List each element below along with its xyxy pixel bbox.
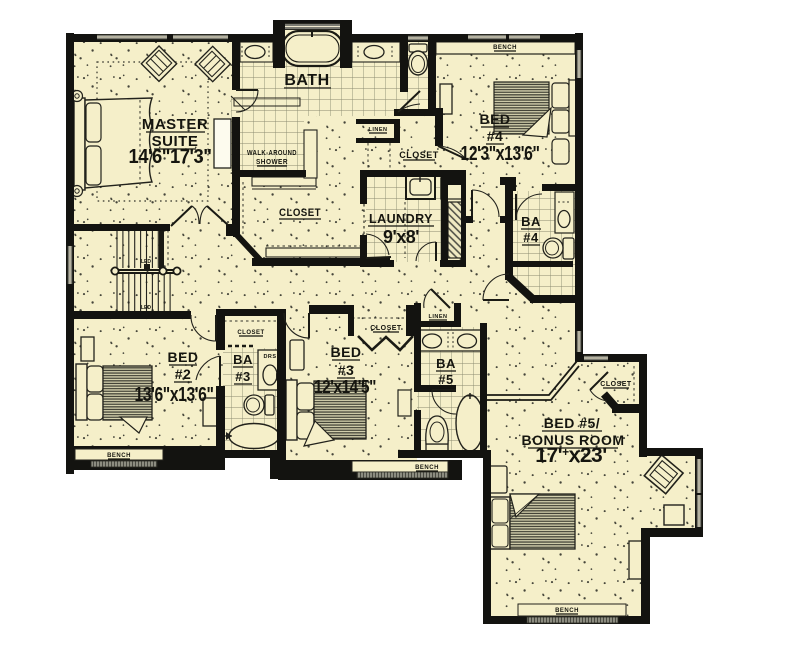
svg-text:#2: #2 [175, 366, 192, 382]
svg-text:BATH: BATH [284, 72, 329, 89]
svg-text:#3: #3 [338, 362, 355, 378]
svg-text:#5: #5 [438, 372, 453, 387]
svg-text:BA: BA [436, 356, 456, 371]
svg-text:BENCH: BENCH [415, 465, 439, 471]
svg-text:LED: LED [141, 305, 151, 311]
svg-text:CLOSET: CLOSET [237, 330, 264, 336]
svg-text:LED: LED [141, 259, 151, 265]
svg-text:LAUNDRY: LAUNDRY [369, 211, 433, 226]
svg-text:LINEN: LINEN [429, 314, 448, 320]
svg-text:#4: #4 [487, 128, 504, 144]
svg-text:#3: #3 [235, 369, 250, 384]
svg-text:9'x8': 9'x8' [383, 227, 419, 247]
svg-text:CLOSET: CLOSET [279, 207, 321, 219]
svg-text:CLOSET: CLOSET [600, 381, 632, 388]
svg-text:BED: BED [330, 344, 361, 360]
svg-text:BA: BA [233, 352, 253, 367]
svg-text:BA: BA [521, 214, 541, 229]
svg-text:BENCH: BENCH [107, 453, 131, 459]
svg-text:12'3"x13'6": 12'3"x13'6" [461, 143, 540, 165]
svg-text:12'x14'5": 12'x14'5" [314, 377, 376, 397]
svg-text:DRS: DRS [263, 354, 276, 360]
svg-text:BED: BED [167, 349, 198, 365]
svg-text:MASTER: MASTER [142, 116, 208, 133]
svg-text:#4: #4 [523, 230, 539, 245]
svg-text:BENCH: BENCH [555, 608, 579, 614]
svg-text:BED #5/: BED #5/ [544, 415, 600, 431]
svg-text:LINEN: LINEN [369, 127, 388, 133]
svg-text:14'6"17'3": 14'6"17'3" [129, 146, 212, 168]
svg-text:SHOWER: SHOWER [256, 159, 288, 166]
svg-text:CLOSET: CLOSET [399, 150, 439, 160]
svg-text:17'+x23': 17'+x23' [535, 444, 606, 467]
svg-text:BED: BED [479, 111, 510, 127]
svg-text:CLOSET: CLOSET [370, 325, 402, 332]
svg-text:WALK-AROUND: WALK-AROUND [247, 150, 297, 157]
svg-text:13'6"x13'6": 13'6"x13'6" [135, 384, 214, 406]
svg-text:BENCH: BENCH [493, 45, 517, 51]
